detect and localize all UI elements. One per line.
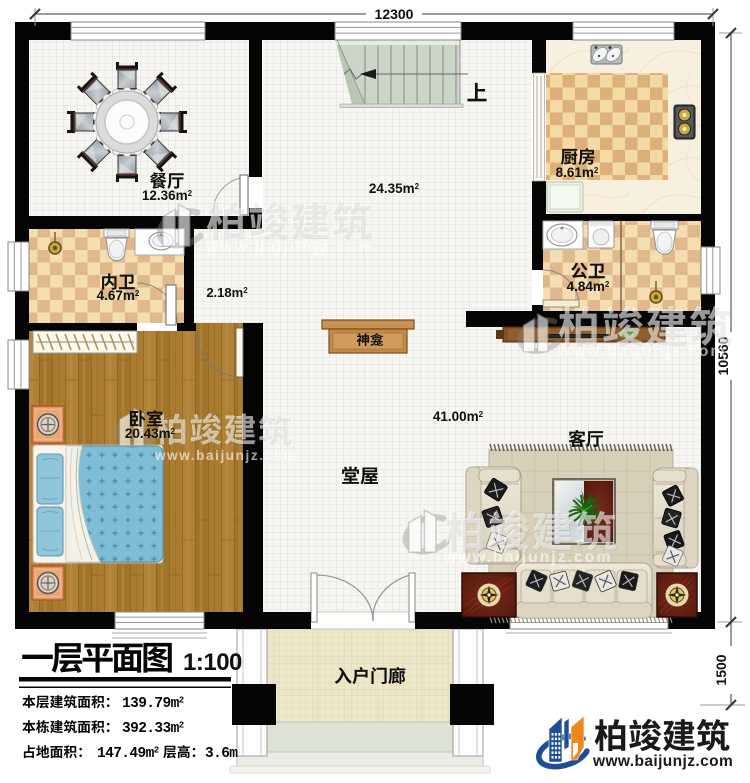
svg-text:www.baijunjz.com: www.baijunjz.com — [592, 753, 733, 770]
svg-text:2.18m2: 2.18m2 — [206, 285, 248, 300]
svg-text:4.84m2: 4.84m2 — [567, 279, 610, 294]
svg-text:1500: 1500 — [713, 654, 729, 685]
svg-text:8.61m2: 8.61m2 — [556, 165, 599, 180]
svg-text:392.33m2: 392.33m2 — [122, 721, 184, 738]
svg-text:24.35m2: 24.35m2 — [369, 181, 420, 196]
svg-text:20.43m2: 20.43m2 — [125, 426, 176, 441]
svg-text:147.49m2: 147.49m2 — [97, 746, 159, 763]
svg-text:1:100: 1:100 — [183, 649, 242, 676]
svg-text:www.baijunjz.com: www.baijunjz.com — [557, 343, 727, 360]
svg-text:www.baijunjz.com: www.baijunjz.com — [443, 549, 613, 566]
svg-text:139.79m2: 139.79m2 — [122, 696, 184, 713]
svg-text:12.36m2: 12.36m2 — [142, 188, 193, 203]
svg-text:12300: 12300 — [375, 6, 414, 22]
svg-text:4.67m2: 4.67m2 — [97, 288, 140, 303]
svg-text:www.baijunjz.com: www.baijunjz.com — [154, 448, 297, 463]
svg-text:41.00m2: 41.00m2 — [433, 409, 484, 424]
svg-text:3.6m: 3.6m — [205, 746, 238, 762]
svg-text:www.baijunjz.com: www.baijunjz.com — [205, 239, 375, 256]
